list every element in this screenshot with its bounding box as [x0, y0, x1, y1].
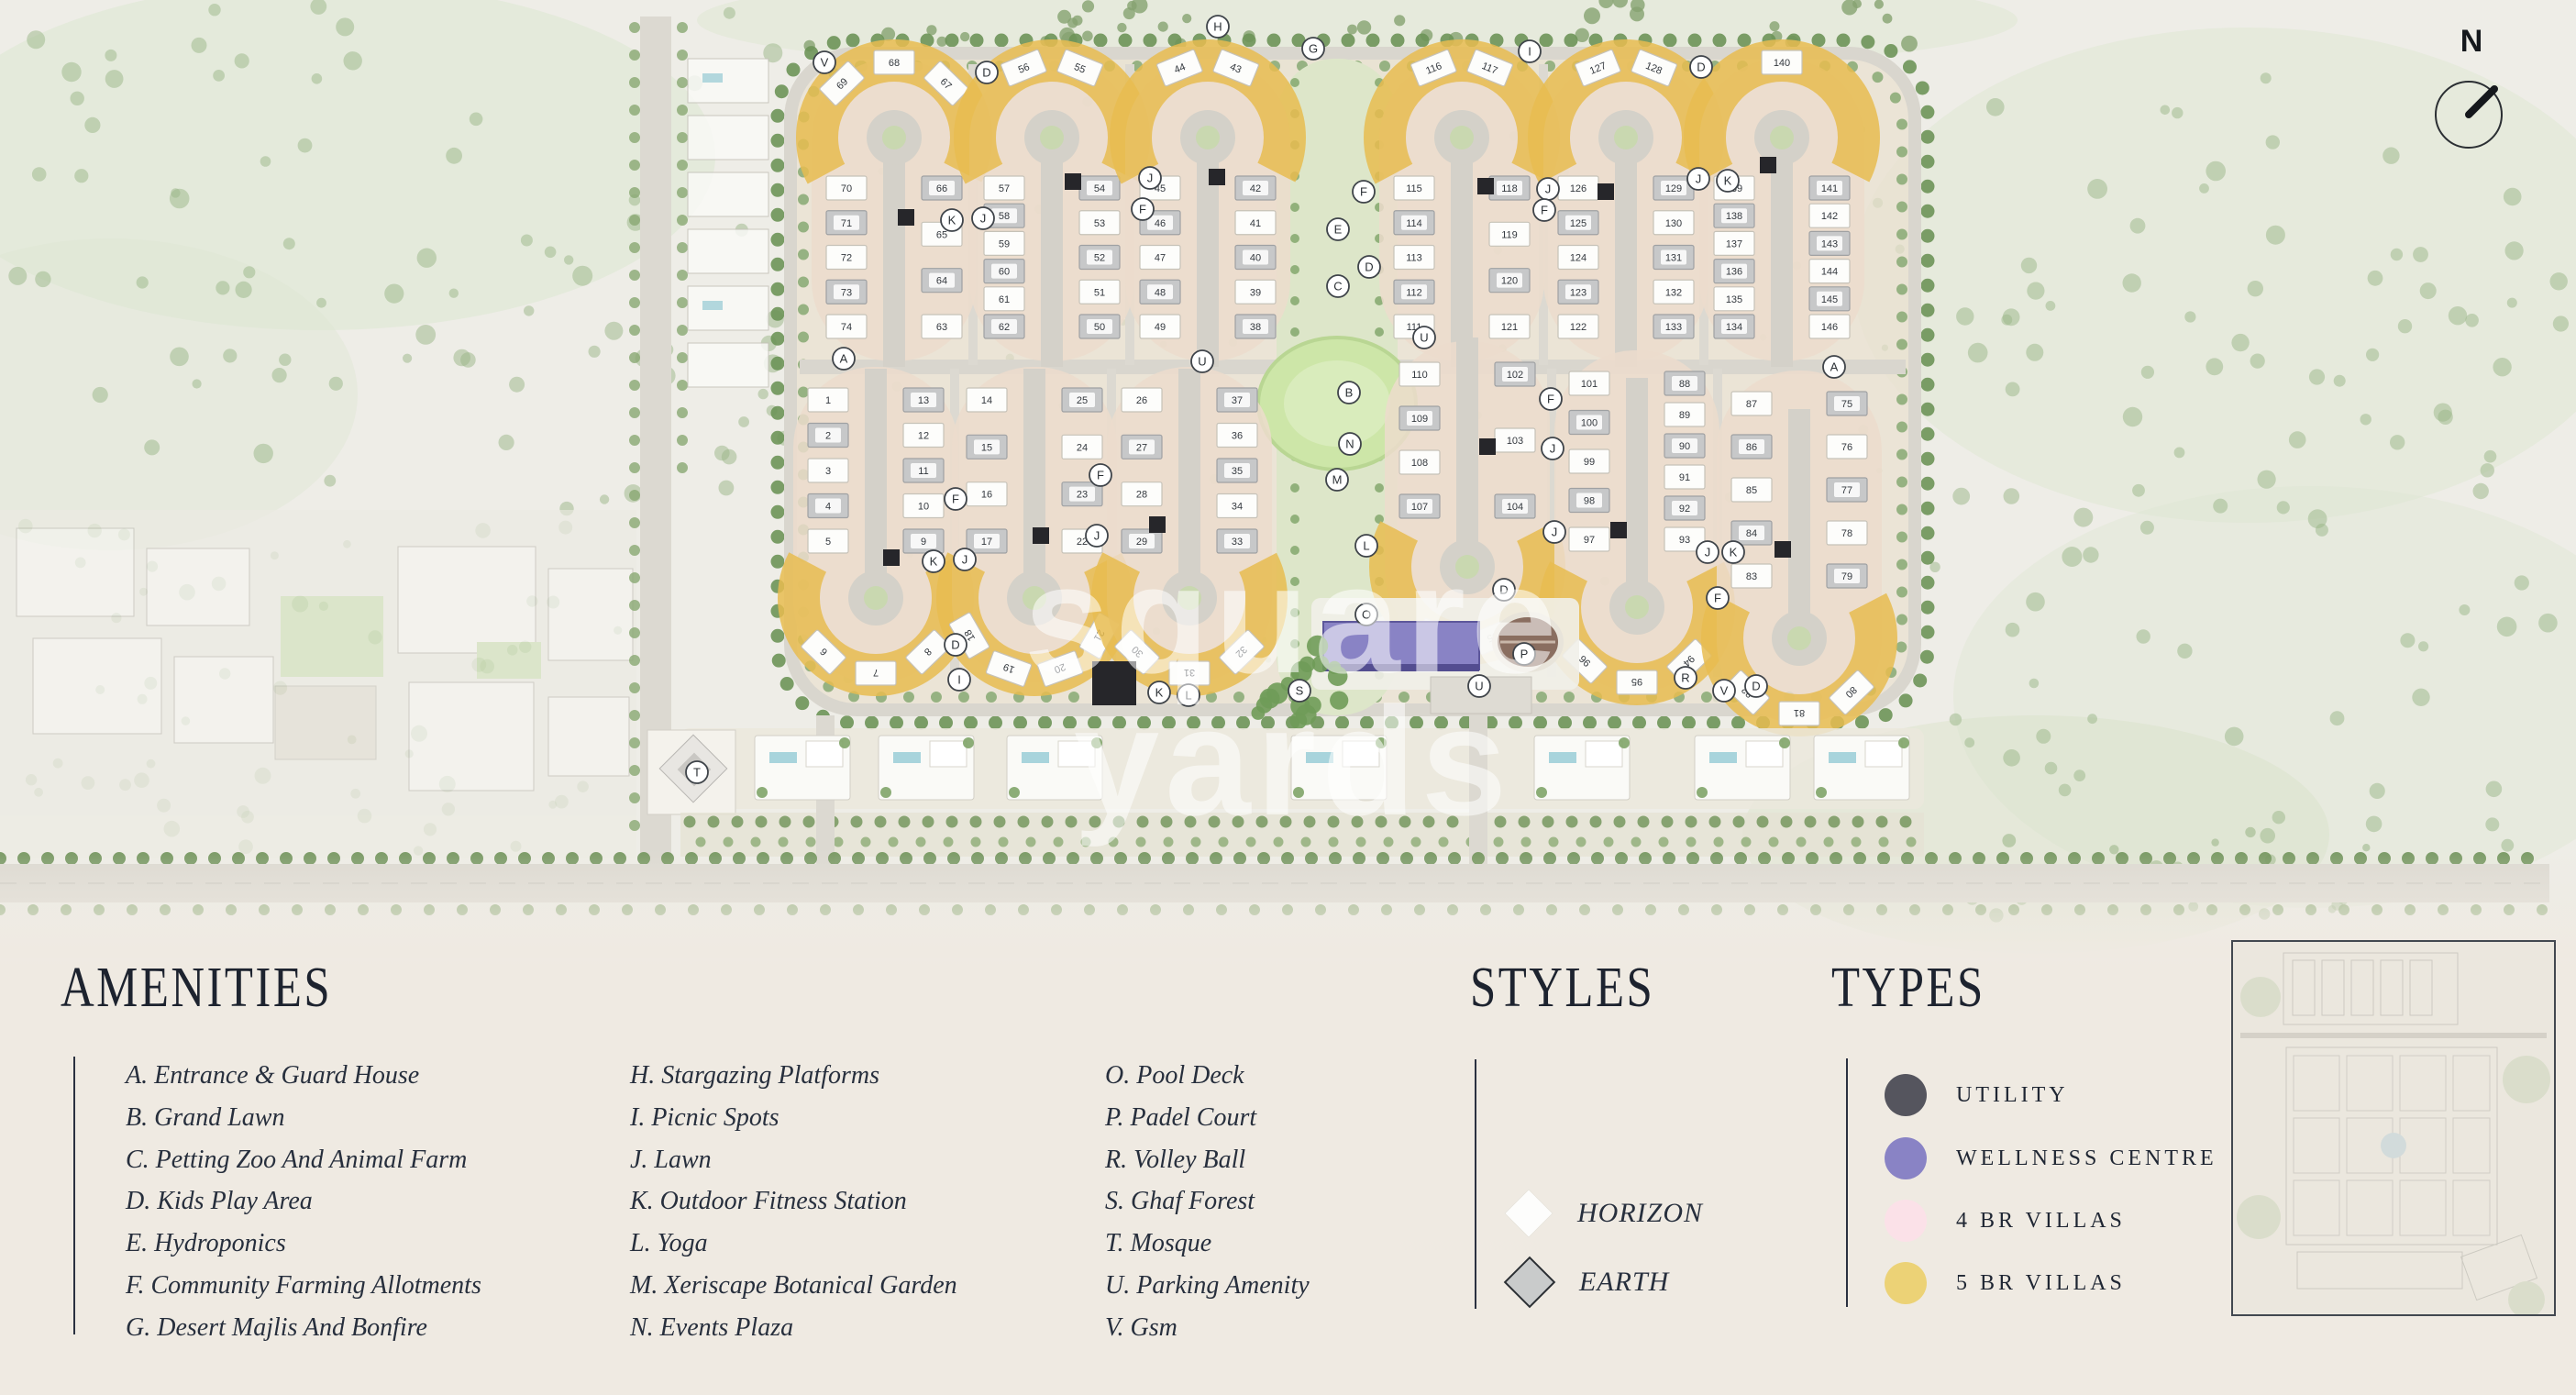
types-title: TYPES [1831, 956, 1985, 1021]
villa: 97 [1569, 527, 1609, 551]
horizon-diamond-icon [1504, 1189, 1553, 1238]
clubhouse-building [1058, 741, 1095, 767]
villa: 3 [808, 459, 848, 482]
villa: 24 [1062, 435, 1102, 459]
villa: 107 [1399, 494, 1440, 518]
villa-number: 23 [1077, 490, 1088, 501]
villa-number: 29 [1136, 537, 1147, 548]
tree-icon [170, 189, 190, 209]
marker-letter: D [1697, 61, 1705, 74]
marker-letter: L [1363, 539, 1369, 553]
amenity-item: S. Ghaf Forest [1105, 1180, 1310, 1223]
tree-icon [460, 352, 476, 368]
marker-letter: G [1309, 42, 1318, 56]
tree-icon [449, 289, 459, 298]
marker-letter: N [1345, 437, 1354, 451]
tree-icon [604, 322, 623, 340]
tree-icon [2538, 614, 2558, 633]
villa: 99 [1569, 449, 1609, 473]
villa: 122 [1558, 315, 1598, 338]
tree-icon [2087, 714, 2097, 724]
tree-icon [2021, 258, 2037, 273]
villa-number: 78 [1841, 528, 1852, 539]
amenity-marker-J: J [972, 207, 994, 229]
tree-icon [2003, 749, 2020, 767]
villa-number: 76 [1841, 442, 1852, 453]
villa: 81 [1779, 702, 1819, 725]
loop-island [1450, 126, 1474, 149]
amenity-marker-F: F [1089, 464, 1111, 486]
amenities-divider [73, 1057, 75, 1334]
villa: 92 [1664, 496, 1705, 520]
amenity-item: J. Lawn [630, 1139, 957, 1181]
clubhouse-building [1343, 741, 1379, 767]
tree-icon [2073, 769, 2085, 781]
amenity-marker-U: U [1468, 675, 1490, 697]
tree-icon [2172, 107, 2183, 118]
villa-number: 74 [841, 322, 852, 333]
villa: 60 [984, 260, 1024, 283]
tree-icon [2481, 463, 2494, 477]
villa: 73 [826, 280, 867, 304]
villa-cluster: 12345131211109678 [793, 367, 958, 685]
villa-number: 48 [1155, 287, 1166, 298]
villa: 79 [1827, 564, 1867, 588]
tree-icon [2026, 344, 2043, 361]
loop-island [1455, 555, 1479, 579]
tree-icon [1536, 787, 1547, 798]
villa: 68 [874, 50, 914, 74]
villa-number: 2 [825, 431, 831, 442]
amenity-item: H. Stargazing Platforms [630, 1055, 957, 1097]
tree-icon [283, 238, 295, 249]
clubhouse-building [806, 741, 843, 767]
marker-letter: R [1681, 671, 1689, 685]
tree-icon [2123, 407, 2142, 426]
tree-icon [2309, 369, 2325, 384]
marker-letter: F [1139, 203, 1146, 216]
utility-block [1610, 522, 1627, 538]
amenity-marker-J: J [954, 548, 976, 570]
tree-icon [2515, 575, 2529, 590]
villa: 103 [1495, 428, 1535, 452]
marker-letter: V [1720, 684, 1729, 698]
tree-icon [2360, 414, 2371, 425]
villa-number: 36 [1232, 431, 1243, 442]
amenity-item: F. Community Farming Allotments [126, 1265, 481, 1307]
villa: 142 [1809, 204, 1850, 227]
tree-icon [1584, 7, 1600, 24]
villa-number: 58 [999, 211, 1010, 222]
amenity-marker-F: F [1132, 198, 1154, 220]
tree-icon [2261, 72, 2272, 83]
tree-icon [260, 156, 271, 167]
amenity-marker-S: S [1288, 680, 1310, 702]
villa: 137 [1714, 231, 1754, 255]
marker-letter: D [982, 66, 990, 80]
tree-icon [213, 70, 225, 82]
villa: 120 [1489, 269, 1530, 293]
utility-block [1149, 516, 1166, 533]
amenity-item: D. Kids Play Area [126, 1180, 481, 1223]
tree-icon [2001, 315, 2012, 326]
tree-icon [1330, 692, 1348, 710]
amenity-marker-J: J [1537, 178, 1559, 200]
tree-icon [1901, 36, 1918, 52]
villa: 77 [1827, 478, 1867, 502]
villa-number: 115 [1406, 183, 1422, 194]
tree-icon [1182, 14, 1191, 23]
villa: 130 [1653, 211, 1694, 235]
marker-letter: F [1097, 469, 1104, 482]
villa: 14 [967, 388, 1007, 412]
villa-number: 25 [1077, 395, 1088, 406]
style-label: HORIZON [1577, 1198, 1703, 1229]
tree-icon [137, 276, 149, 288]
tree-icon [2027, 282, 2044, 300]
villa-number: 109 [1411, 414, 1428, 425]
type-label: UTILITY [1956, 1083, 2069, 1108]
villa: 15 [967, 435, 1007, 459]
villa-number: 71 [841, 218, 852, 229]
utility-block [1065, 173, 1081, 190]
villa: 101 [1569, 371, 1609, 395]
villa: 145 [1809, 287, 1850, 311]
tree-icon [144, 439, 160, 455]
villa-number: 60 [999, 267, 1010, 278]
tree-icon [2277, 501, 2290, 514]
tree-icon [1779, 737, 1790, 748]
pool [893, 752, 921, 763]
loop-island [1614, 126, 1638, 149]
utility-block [1760, 157, 1776, 173]
villa: 12 [903, 424, 944, 448]
villa-number: 75 [1841, 399, 1852, 410]
amenities-column-1: A. Entrance & Guard HouseB. Grand LawnC.… [126, 1055, 481, 1349]
tree-icon [415, 325, 436, 345]
type-row-utility: UTILITY [1885, 1071, 2069, 1119]
amenity-marker-I: I [1519, 40, 1541, 62]
tree-icon [1964, 737, 1974, 747]
tree-icon [2140, 521, 2154, 535]
tree-icon [272, 368, 287, 382]
villa-number: 140 [1774, 58, 1790, 69]
villa-number: 102 [1507, 370, 1523, 381]
villa-number: 35 [1232, 466, 1243, 477]
amenity-marker-J: J [1139, 167, 1161, 189]
tree-icon [2123, 273, 2141, 292]
marker-letter: K [948, 214, 956, 227]
pool [1829, 752, 1856, 763]
tree-icon [572, 266, 592, 286]
villa-number: 101 [1581, 379, 1598, 390]
villa-number: 119 [1501, 229, 1518, 240]
villa-number: 28 [1136, 490, 1147, 501]
amenity-item: M. Xeriscape Botanical Garden [630, 1265, 957, 1307]
tree-icon [738, 416, 749, 427]
villa: 38 [1235, 315, 1276, 338]
villa-number: 54 [1094, 183, 1105, 194]
villa: 78 [1827, 521, 1867, 545]
loop-island [1625, 595, 1649, 619]
marker-letter: J [1552, 526, 1558, 539]
tree-icon [1117, 23, 1126, 32]
villa-number: 137 [1726, 238, 1742, 249]
tree-icon [344, 51, 362, 70]
utility-block [1209, 169, 1225, 185]
villa-number: 136 [1726, 267, 1742, 278]
tree-icon [2029, 679, 2040, 689]
tree-icon [417, 249, 437, 268]
villa: 141 [1809, 176, 1850, 200]
loop-road [1178, 369, 1200, 598]
overview-inset-map [2231, 940, 2556, 1316]
villa: 34 [1217, 494, 1257, 518]
tree-icon [312, 73, 323, 84]
villa: 133 [1653, 315, 1694, 338]
tree-icon [74, 169, 88, 183]
villa-number: 77 [1841, 485, 1852, 496]
clubhouse [1534, 736, 1630, 800]
villa: 37 [1217, 388, 1257, 412]
tree-icon [2497, 617, 2517, 637]
tree-icon [2177, 644, 2192, 659]
tree-icon [61, 62, 81, 82]
tree-icon [1376, 737, 1387, 748]
tree-icon [35, 271, 50, 287]
marker-letter: O [1362, 608, 1371, 622]
tree-icon [1816, 787, 1827, 798]
tree-icon [2507, 298, 2517, 308]
masterplan-page: 7071727374666564636968675758596061625453… [0, 0, 2576, 1395]
tree-icon [2260, 828, 2275, 844]
marker-letter: J [962, 553, 968, 567]
marker-letter: K [930, 555, 938, 569]
styles-title: STYLES [1470, 956, 1654, 1021]
utility-block [1598, 183, 1614, 200]
villa-number: 34 [1232, 502, 1243, 513]
marker-letter: E [1334, 223, 1343, 237]
marker-letter: J [1550, 442, 1556, 456]
villa: 125 [1558, 211, 1598, 235]
tree-icon [32, 167, 47, 182]
villa: 114 [1394, 211, 1434, 235]
amenity-marker-A: A [833, 348, 855, 370]
amenity-item: V. Gsm [1105, 1307, 1310, 1349]
tree-icon [384, 284, 404, 304]
villa-number: 12 [918, 431, 929, 442]
tree-icon [2391, 249, 2403, 260]
amenities-title: AMENITIES [61, 956, 332, 1021]
villa: 66 [922, 176, 962, 200]
tree-icon [2199, 183, 2209, 194]
villa-number: 16 [981, 490, 992, 501]
villa-number: 87 [1746, 399, 1757, 410]
villa: 51 [1079, 280, 1120, 304]
tree-icon [2026, 592, 2045, 612]
tree-icon [298, 138, 313, 153]
villa-number: 89 [1679, 410, 1690, 421]
villa-number: 17 [981, 537, 992, 548]
tree-icon [2141, 366, 2154, 379]
tree-icon [1394, 15, 1405, 26]
tree-icon [839, 737, 850, 748]
tree-icon [2245, 827, 2255, 837]
villa-number: 70 [841, 183, 852, 194]
tree-icon [1307, 636, 1328, 657]
tree-icon [329, 377, 343, 391]
pool [1549, 752, 1576, 763]
villa-number: 62 [999, 322, 1010, 333]
villa-cluster: 126125124123122129130131132133127128 [1543, 50, 1708, 367]
style-row-horizon: HORIZON [1511, 1190, 1703, 1237]
villa-number: 129 [1665, 183, 1682, 194]
villa: 143 [1809, 231, 1850, 255]
tree-icon [470, 113, 483, 127]
marker-letter: K [1724, 174, 1732, 188]
left-community-buildings [0, 510, 636, 858]
tree-icon [2161, 105, 2171, 116]
villa-number: 135 [1726, 294, 1742, 305]
tree-icon [2550, 272, 2568, 290]
villa: 62 [984, 315, 1024, 338]
villa-number: 110 [1411, 370, 1428, 381]
tree-icon [71, 92, 84, 105]
tree-icon [1299, 657, 1315, 672]
tree-icon [2366, 349, 2379, 361]
villa: 86 [1731, 435, 1772, 459]
amenity-item: C. Petting Zoo And Animal Farm [126, 1139, 481, 1181]
tree-icon [8, 267, 27, 285]
amenity-marker-R: R [1675, 667, 1697, 689]
villa-number: 91 [1679, 472, 1690, 483]
villa-number: 15 [981, 442, 992, 453]
tree-icon [1883, 14, 1893, 24]
tree-icon [2231, 334, 2249, 351]
villa-number: 133 [1665, 322, 1682, 333]
villa: 100 [1569, 411, 1609, 435]
tree-icon [564, 255, 573, 264]
villa-number: 49 [1155, 322, 1166, 333]
marker-letter: J [1705, 546, 1711, 559]
pool [1709, 752, 1737, 763]
marker-letter: S [1296, 684, 1304, 698]
villa: 89 [1664, 403, 1705, 426]
villa: 61 [984, 287, 1024, 311]
tree-icon [1127, 1, 1137, 11]
tree-icon [2250, 354, 2265, 369]
villa-number: 90 [1679, 441, 1690, 452]
villa-number: 46 [1155, 218, 1166, 229]
pool [769, 752, 797, 763]
villa-number: 37 [1232, 395, 1243, 406]
tree-icon [2248, 281, 2263, 296]
villa: 71 [826, 211, 867, 235]
villa-number: 92 [1679, 504, 1690, 515]
tree-icon [2062, 547, 2082, 567]
tree-icon [1841, 0, 1857, 16]
villa: 49 [1140, 315, 1180, 338]
tree-icon [1968, 343, 1988, 363]
villa: 36 [1217, 424, 1257, 448]
tree-icon [1290, 712, 1308, 729]
amenity-marker-T: T [686, 761, 708, 783]
tree-icon [1009, 787, 1020, 798]
villa-number: 95 [1631, 676, 1642, 687]
tree-icon [719, 481, 735, 496]
tree-icon [2174, 448, 2185, 459]
utility-block [898, 209, 914, 226]
villa: 85 [1731, 478, 1772, 502]
marker-letter: J [980, 212, 987, 226]
villa-number: 84 [1746, 528, 1757, 539]
villa-number: 40 [1250, 253, 1261, 264]
tree-icon [235, 53, 249, 68]
tree-icon [2418, 641, 2428, 651]
loop-island [1196, 126, 1220, 149]
type-row-4br: 4 BR VILLAS [1885, 1197, 2126, 1245]
amenity-item: N. Events Plaza [630, 1307, 957, 1349]
amenity-item: G. Desert Majlis And Bonfire [126, 1307, 481, 1349]
tree-icon [2485, 817, 2499, 831]
tree-icon [2383, 148, 2399, 164]
clubhouse [1814, 736, 1909, 800]
villa-number: 112 [1406, 287, 1422, 298]
villa-number: 31 [1184, 667, 1195, 678]
tree-icon [105, 70, 124, 88]
villa-number: 63 [936, 322, 947, 333]
tree-icon [714, 446, 730, 461]
tree-icon [1952, 488, 1970, 505]
tree-icon [2225, 727, 2244, 747]
marker-letter: U [1198, 355, 1206, 369]
clubhouse [1695, 736, 1790, 800]
villa: 40 [1235, 246, 1276, 270]
villa-number: 50 [1094, 322, 1105, 333]
utility-dot-icon [1885, 1074, 1927, 1116]
amenity-marker-D: D [945, 634, 967, 656]
villa-number: 85 [1746, 485, 1757, 496]
amenity-item: B. Grand Lawn [126, 1097, 481, 1139]
villa-number: 143 [1821, 238, 1838, 249]
villa-number: 73 [841, 287, 852, 298]
compass-north-label: N [2421, 24, 2522, 60]
amenity-marker-G: G [1302, 38, 1324, 60]
tree-icon [2370, 783, 2385, 799]
villa-number: 51 [1094, 287, 1105, 298]
loop-road [883, 138, 905, 367]
villa-number: 5 [825, 537, 831, 548]
tree-icon [2137, 629, 2150, 643]
villa-number: 59 [999, 238, 1010, 249]
villa: 50 [1079, 315, 1120, 338]
marker-letter: F [1360, 185, 1367, 199]
amenity-marker-K: K [1148, 681, 1170, 703]
villa: 25 [1062, 388, 1102, 412]
villa-number: 9 [921, 537, 926, 548]
loop-road [1456, 338, 1478, 567]
type-label: 5 BR VILLAS [1956, 1271, 2126, 1296]
marker-letter: K [1730, 546, 1738, 559]
marker-letter: I [1528, 45, 1531, 59]
clubhouse-building [930, 741, 967, 767]
villa-number: 24 [1077, 442, 1088, 453]
amenity-item: P. Padel Court [1105, 1097, 1310, 1139]
clubhouse [755, 736, 850, 800]
utility-block [883, 549, 900, 566]
tree-icon [2073, 508, 2093, 527]
tree-icon [324, 475, 336, 487]
